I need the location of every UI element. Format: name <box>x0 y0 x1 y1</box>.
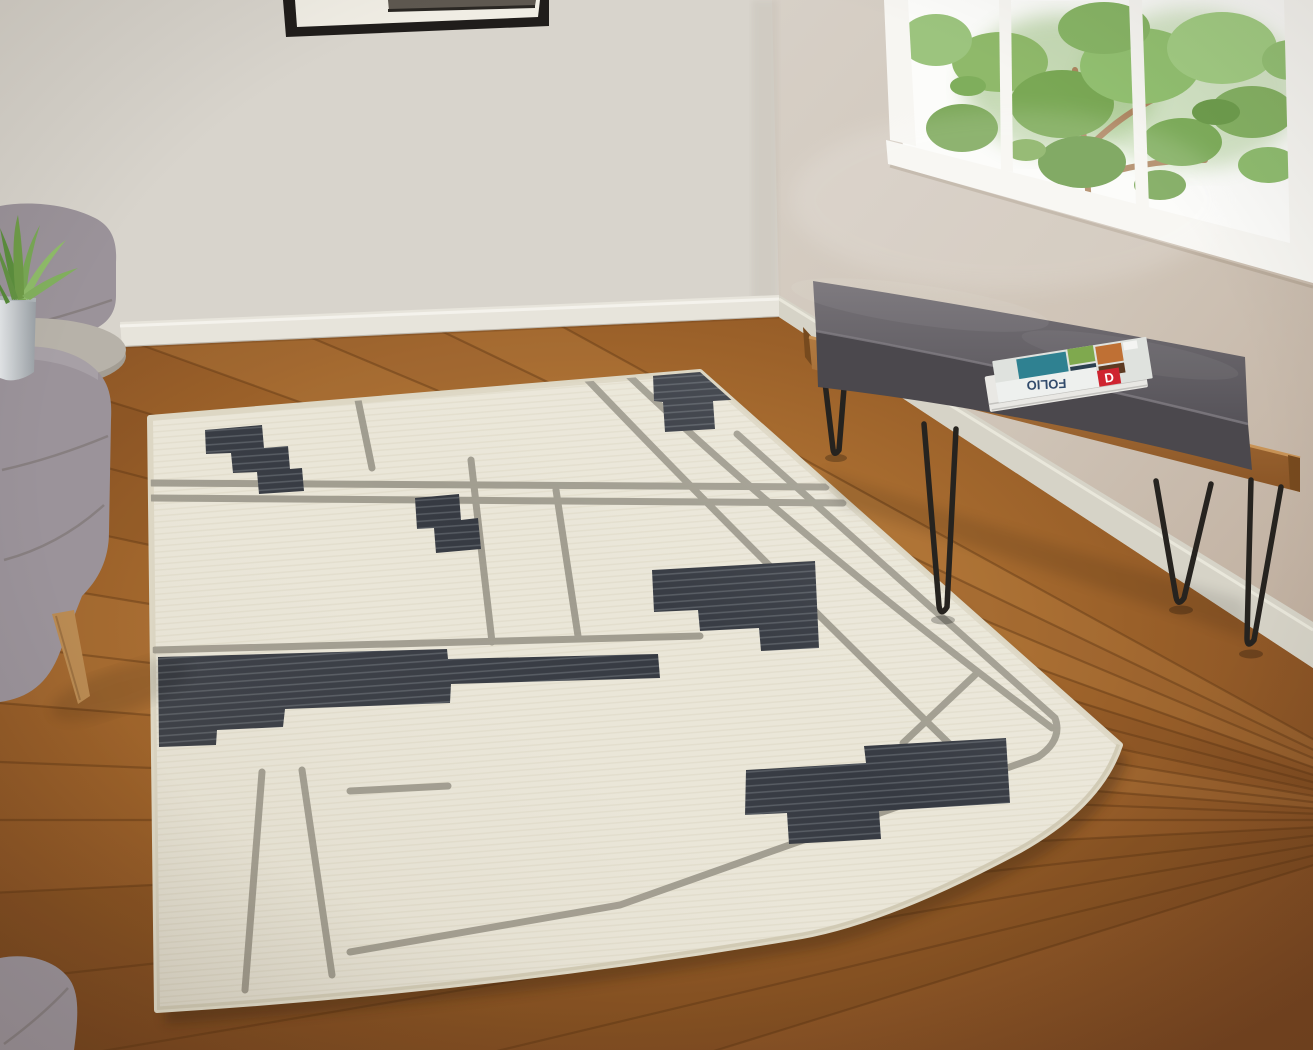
room-photo: FOLIO D <box>0 0 1313 1050</box>
scene-canvas: FOLIO D <box>0 0 1313 1050</box>
vignette-overlay <box>0 0 1313 1050</box>
